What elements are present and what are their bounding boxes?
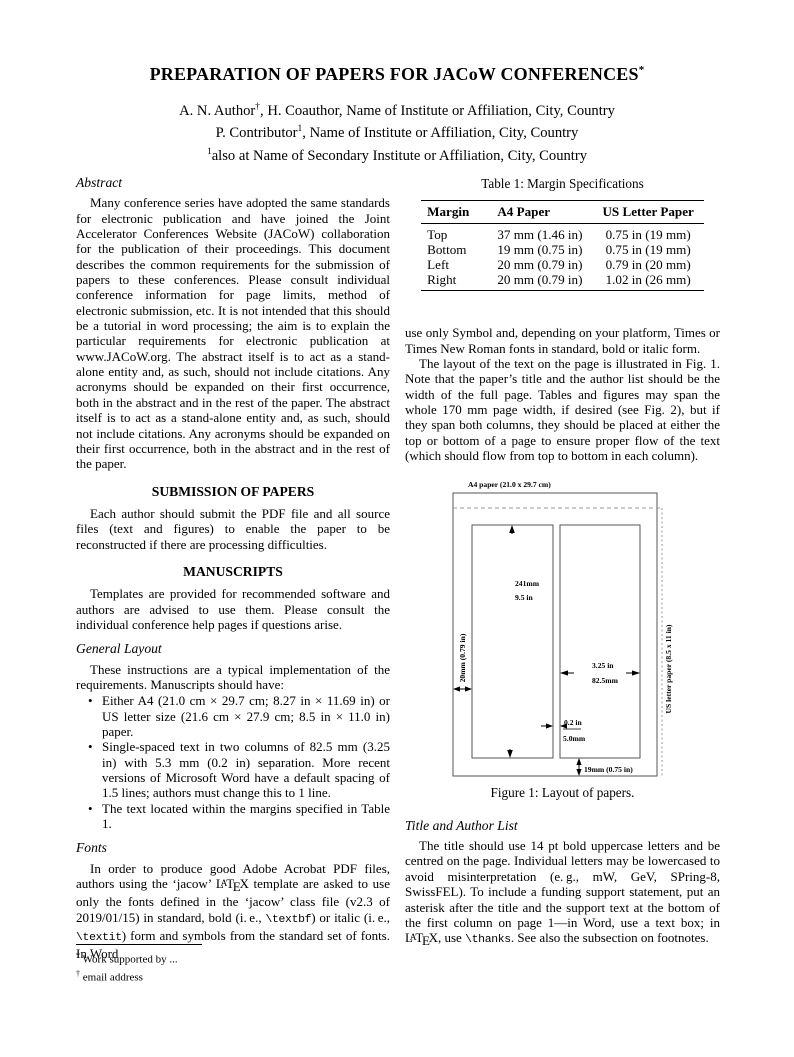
paper-title-text: PREPARATION OF PAPERS FOR JACoW CONFEREN… (150, 64, 639, 84)
table-row: Bottom 19 mm (0.75 in) 0.75 in (19 mm) (421, 242, 704, 257)
table-cell: 37 mm (1.46 in) (487, 223, 592, 242)
two-column-body: Abstract Many conference series have ado… (76, 170, 720, 962)
author-line: A. N. Author†, H. Coauthor, Name of Inst… (0, 98, 794, 120)
submission-heading: SUBMISSION OF PAPERS (76, 484, 390, 499)
latex-logo: LATEX (405, 930, 438, 945)
table-cell: Top (421, 223, 487, 242)
table-row: Top 37 mm (1.46 in) 0.75 in (19 mm) (421, 223, 704, 242)
manuscripts-heading: MANUSCRIPTS (76, 564, 390, 579)
list-item-text: Single-spaced text in two columns of 82.… (102, 739, 390, 800)
left-margin-label: 20mm (0.79 in) (458, 634, 467, 683)
footnote-block: * Work supported by ... † email address (76, 944, 390, 985)
author-name: P. Contributor (216, 125, 298, 141)
title-author-text: The title should use 14 pt bold uppercas… (405, 838, 720, 930)
bullet-icon: • (76, 739, 102, 800)
footnote-funding: * Work supported by ... (76, 949, 390, 967)
bottom-margin-label: 19mm (0.75 in) (584, 765, 633, 774)
figure-1: A4 paper (21.0 x 29.7 cm) US letter pape… (405, 476, 720, 800)
fonts-heading: Fonts (76, 840, 390, 855)
gap-in-label: 0.2 in (564, 718, 583, 727)
table-row: Right 20 mm (0.79 in) 1.02 in (26 mm) (421, 272, 704, 291)
table-cell: 19 mm (0.75 in) (487, 242, 592, 257)
paper-title: PREPARATION OF PAPERS FOR JACoW CONFEREN… (0, 64, 794, 85)
author-name: A. N. Author (179, 103, 255, 119)
left-arrow-icon (560, 671, 568, 676)
general-layout-heading: General Layout (76, 641, 390, 656)
abstract-paragraph: Many conference series have adopted the … (76, 195, 390, 471)
layout-diagram: A4 paper (21.0 x 29.7 cm) US letter pape… (405, 476, 720, 782)
paper-page: PREPARATION OF PAPERS FOR JACoW CONFEREN… (0, 0, 794, 1057)
title-funding-asterisk: * (639, 64, 645, 76)
fonts-continuation-paragraph: use only Symbol and, depending on your p… (405, 325, 720, 356)
latex-letter: X (239, 876, 248, 891)
latex-command-textit: \textit (76, 932, 122, 944)
list-item: • Either A4 (21.0 cm × 29.7 cm; 8.27 in … (76, 693, 390, 739)
author-line: 1also at Name of Secondary Institute or … (0, 143, 794, 165)
figure-caption: Figure 1: Layout of papers. (405, 785, 720, 800)
author-line: P. Contributor1, Name of Institute or Af… (0, 120, 794, 142)
submission-paragraph: Each author should submit the PDF file a… (76, 506, 390, 552)
list-item-text: Either A4 (21.0 cm × 29.7 cm; 8.27 in × … (102, 693, 390, 739)
title-author-list-paragraph: The title should use 14 pt bold uppercas… (405, 838, 720, 948)
down-arrow-icon (507, 750, 513, 758)
title-author-text: . See also the subsection on footnotes. (511, 930, 709, 945)
footnote-text: email address (80, 972, 143, 984)
column-height-in-label: 9.5 in (515, 593, 534, 602)
author-affiliation: , H. Coauthor, Name of Institute or Affi… (260, 103, 615, 119)
left-text-column-box (472, 525, 553, 758)
table-cell: Right (421, 272, 487, 291)
paper-header: PREPARATION OF PAPERS FOR JACoW CONFEREN… (0, 64, 794, 165)
table-cell: Bottom (421, 242, 487, 257)
author-affiliation: , Name of Institute or Affiliation, City… (302, 125, 578, 141)
footnote-text: Work supported by ... (80, 954, 178, 966)
up-arrow-icon (576, 758, 581, 765)
latex-letter: X (429, 930, 438, 945)
left-arrow-icon (453, 687, 460, 692)
column-header: US Letter Paper (592, 201, 703, 223)
table-cell: 0.79 in (20 mm) (592, 257, 703, 272)
a4-paper-outline (453, 493, 657, 776)
layout-paragraph: The layout of the text on the page is il… (405, 356, 720, 463)
column-height-mm-label: 241mm (515, 579, 540, 588)
bullet-icon: • (76, 801, 102, 832)
table-caption: Table 1: Margin Specifications (405, 176, 720, 191)
table-cell: 20 mm (0.79 in) (487, 257, 592, 272)
abstract-heading: Abstract (76, 175, 390, 190)
down-arrow-icon (576, 769, 581, 776)
list-item: • Single-spaced text in two columns of 8… (76, 739, 390, 800)
gap-mm-label: 5.0mm (563, 734, 586, 743)
column-width-mm-label: 82.5mm (592, 676, 619, 685)
right-arrow-icon (546, 724, 553, 729)
title-author-list-heading: Title and Author List (405, 818, 720, 833)
left-column: Abstract Many conference series have ado… (76, 170, 390, 962)
right-column: Table 1: Margin Specifications Margin A4… (405, 170, 720, 962)
latex-command-textbf: \textbf (265, 914, 311, 926)
table-cell: 0.75 in (19 mm) (592, 242, 703, 257)
right-arrow-icon (632, 671, 640, 676)
column-header: A4 Paper (487, 201, 592, 223)
us-letter-label: US letter paper (8.5 x 11 in) (664, 625, 673, 714)
bullet-icon: • (76, 693, 102, 739)
manuscripts-paragraph: Templates are provided for recommended s… (76, 586, 390, 632)
general-layout-intro: These instructions are a typical impleme… (76, 662, 390, 693)
title-author-text: , use (438, 930, 465, 945)
a4-paper-label: A4 paper (21.0 x 29.7 cm) (468, 480, 551, 489)
list-item: • The text located within the margins sp… (76, 801, 390, 832)
up-arrow-icon (509, 525, 515, 533)
table-cell: 20 mm (0.79 in) (487, 272, 592, 291)
requirements-list: • Either A4 (21.0 cm × 29.7 cm; 8.27 in … (76, 693, 390, 831)
list-item-text: The text located within the margins spec… (102, 801, 390, 832)
table-cell: 0.75 in (19 mm) (592, 223, 703, 242)
footnote-email: † email address (76, 967, 390, 985)
author-affiliation: also at Name of Secondary Institute or A… (212, 148, 587, 164)
table-cell: 1.02 in (26 mm) (592, 272, 703, 291)
margin-specifications-table: Margin A4 Paper US Letter Paper Top 37 m… (421, 200, 704, 291)
column-header: Margin (421, 201, 487, 223)
author-block: A. N. Author†, H. Coauthor, Name of Inst… (0, 98, 794, 165)
table-cell: Left (421, 257, 487, 272)
footnote-rule (76, 944, 202, 945)
table-row: Left 20 mm (0.79 in) 0.79 in (20 mm) (421, 257, 704, 272)
latex-command-thanks: \thanks (465, 934, 511, 946)
right-arrow-icon (465, 687, 472, 692)
fonts-text: ) or italic (i. e., (311, 910, 390, 925)
latex-logo: LATEX (216, 876, 249, 891)
column-width-in-label: 3.25 in (592, 661, 614, 670)
table-header-row: Margin A4 Paper US Letter Paper (421, 201, 704, 223)
